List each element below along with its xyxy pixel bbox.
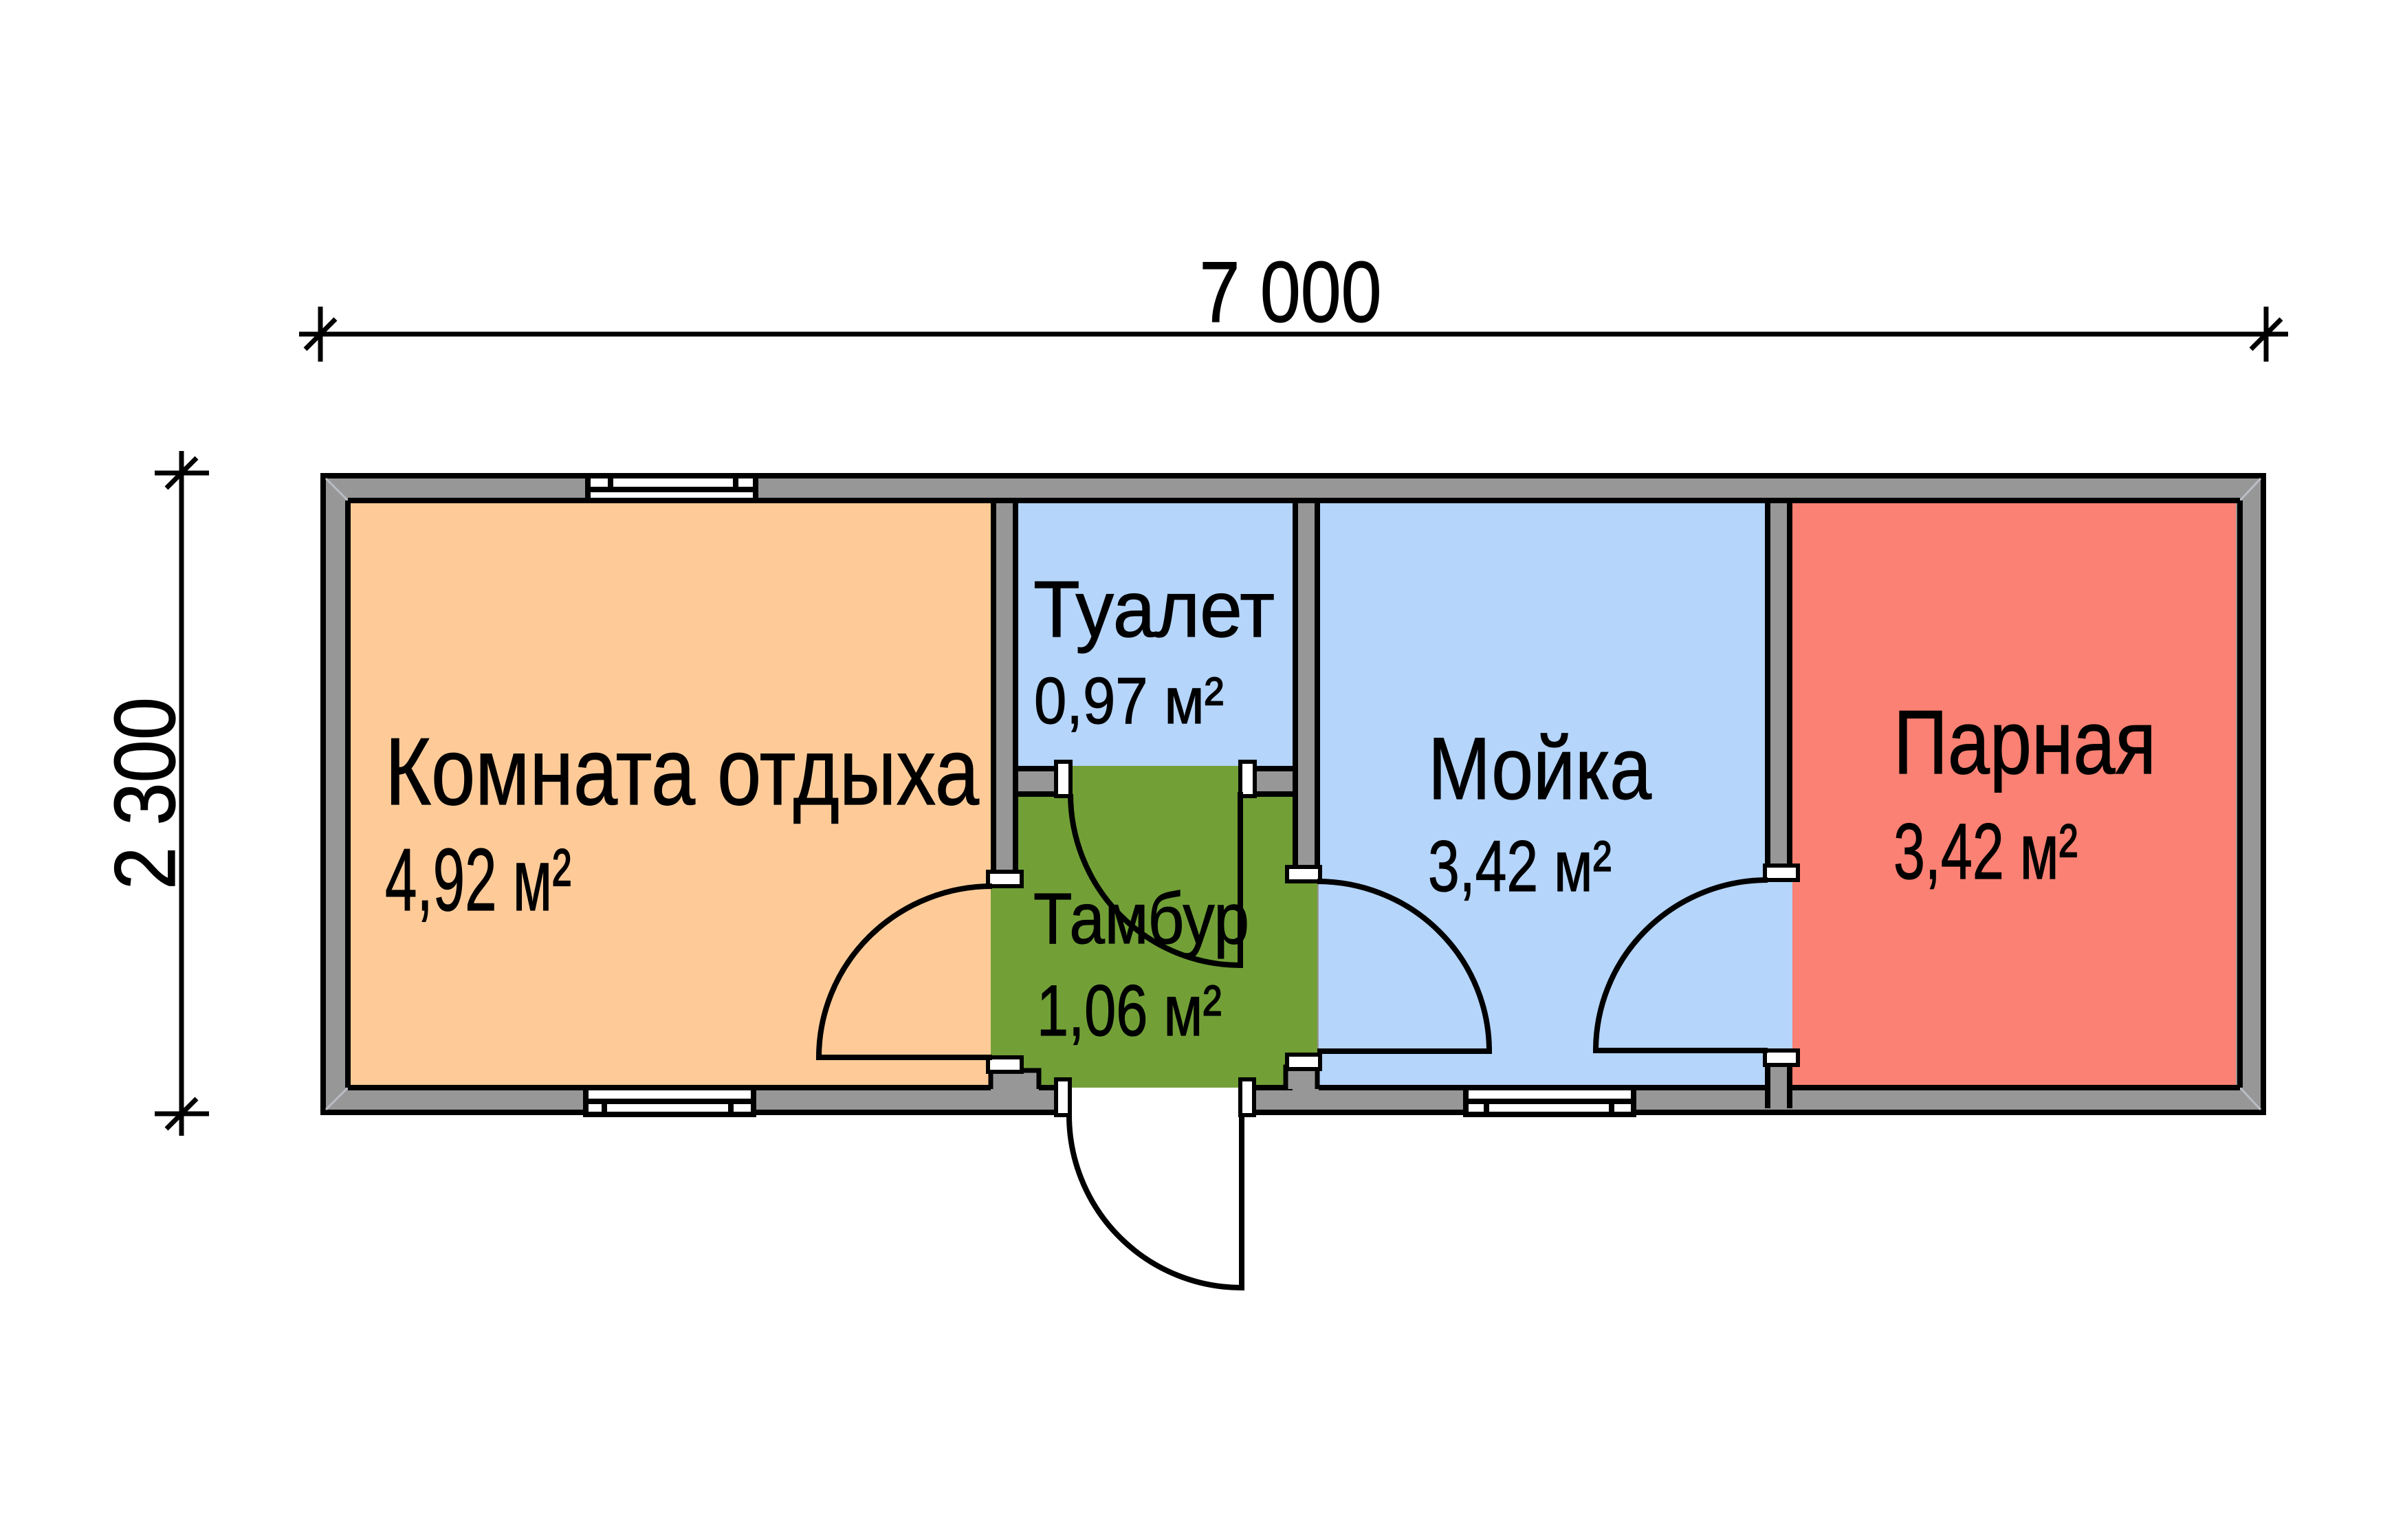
svg-text:1,06 м²: 1,06 м²: [1037, 971, 1222, 1051]
svg-text:Тамбур: Тамбур: [1033, 879, 1249, 959]
svg-text:7 000: 7 000: [1200, 245, 1382, 340]
svg-text:2 300: 2 300: [98, 697, 193, 890]
svg-text:Парная: Парная: [1893, 692, 2156, 793]
svg-text:Туалет: Туалет: [1033, 564, 1275, 654]
svg-text:3,42 м²: 3,42 м²: [1428, 826, 1612, 907]
svg-text:3,42 м²: 3,42 м²: [1893, 808, 2078, 896]
svg-text:Комната отдыха: Комната отдыха: [385, 718, 980, 825]
svg-text:Мойка: Мойка: [1428, 720, 1652, 818]
svg-text:4,92 м²: 4,92 м²: [385, 830, 571, 929]
svg-text:0,97 м²: 0,97 м²: [1034, 664, 1224, 738]
